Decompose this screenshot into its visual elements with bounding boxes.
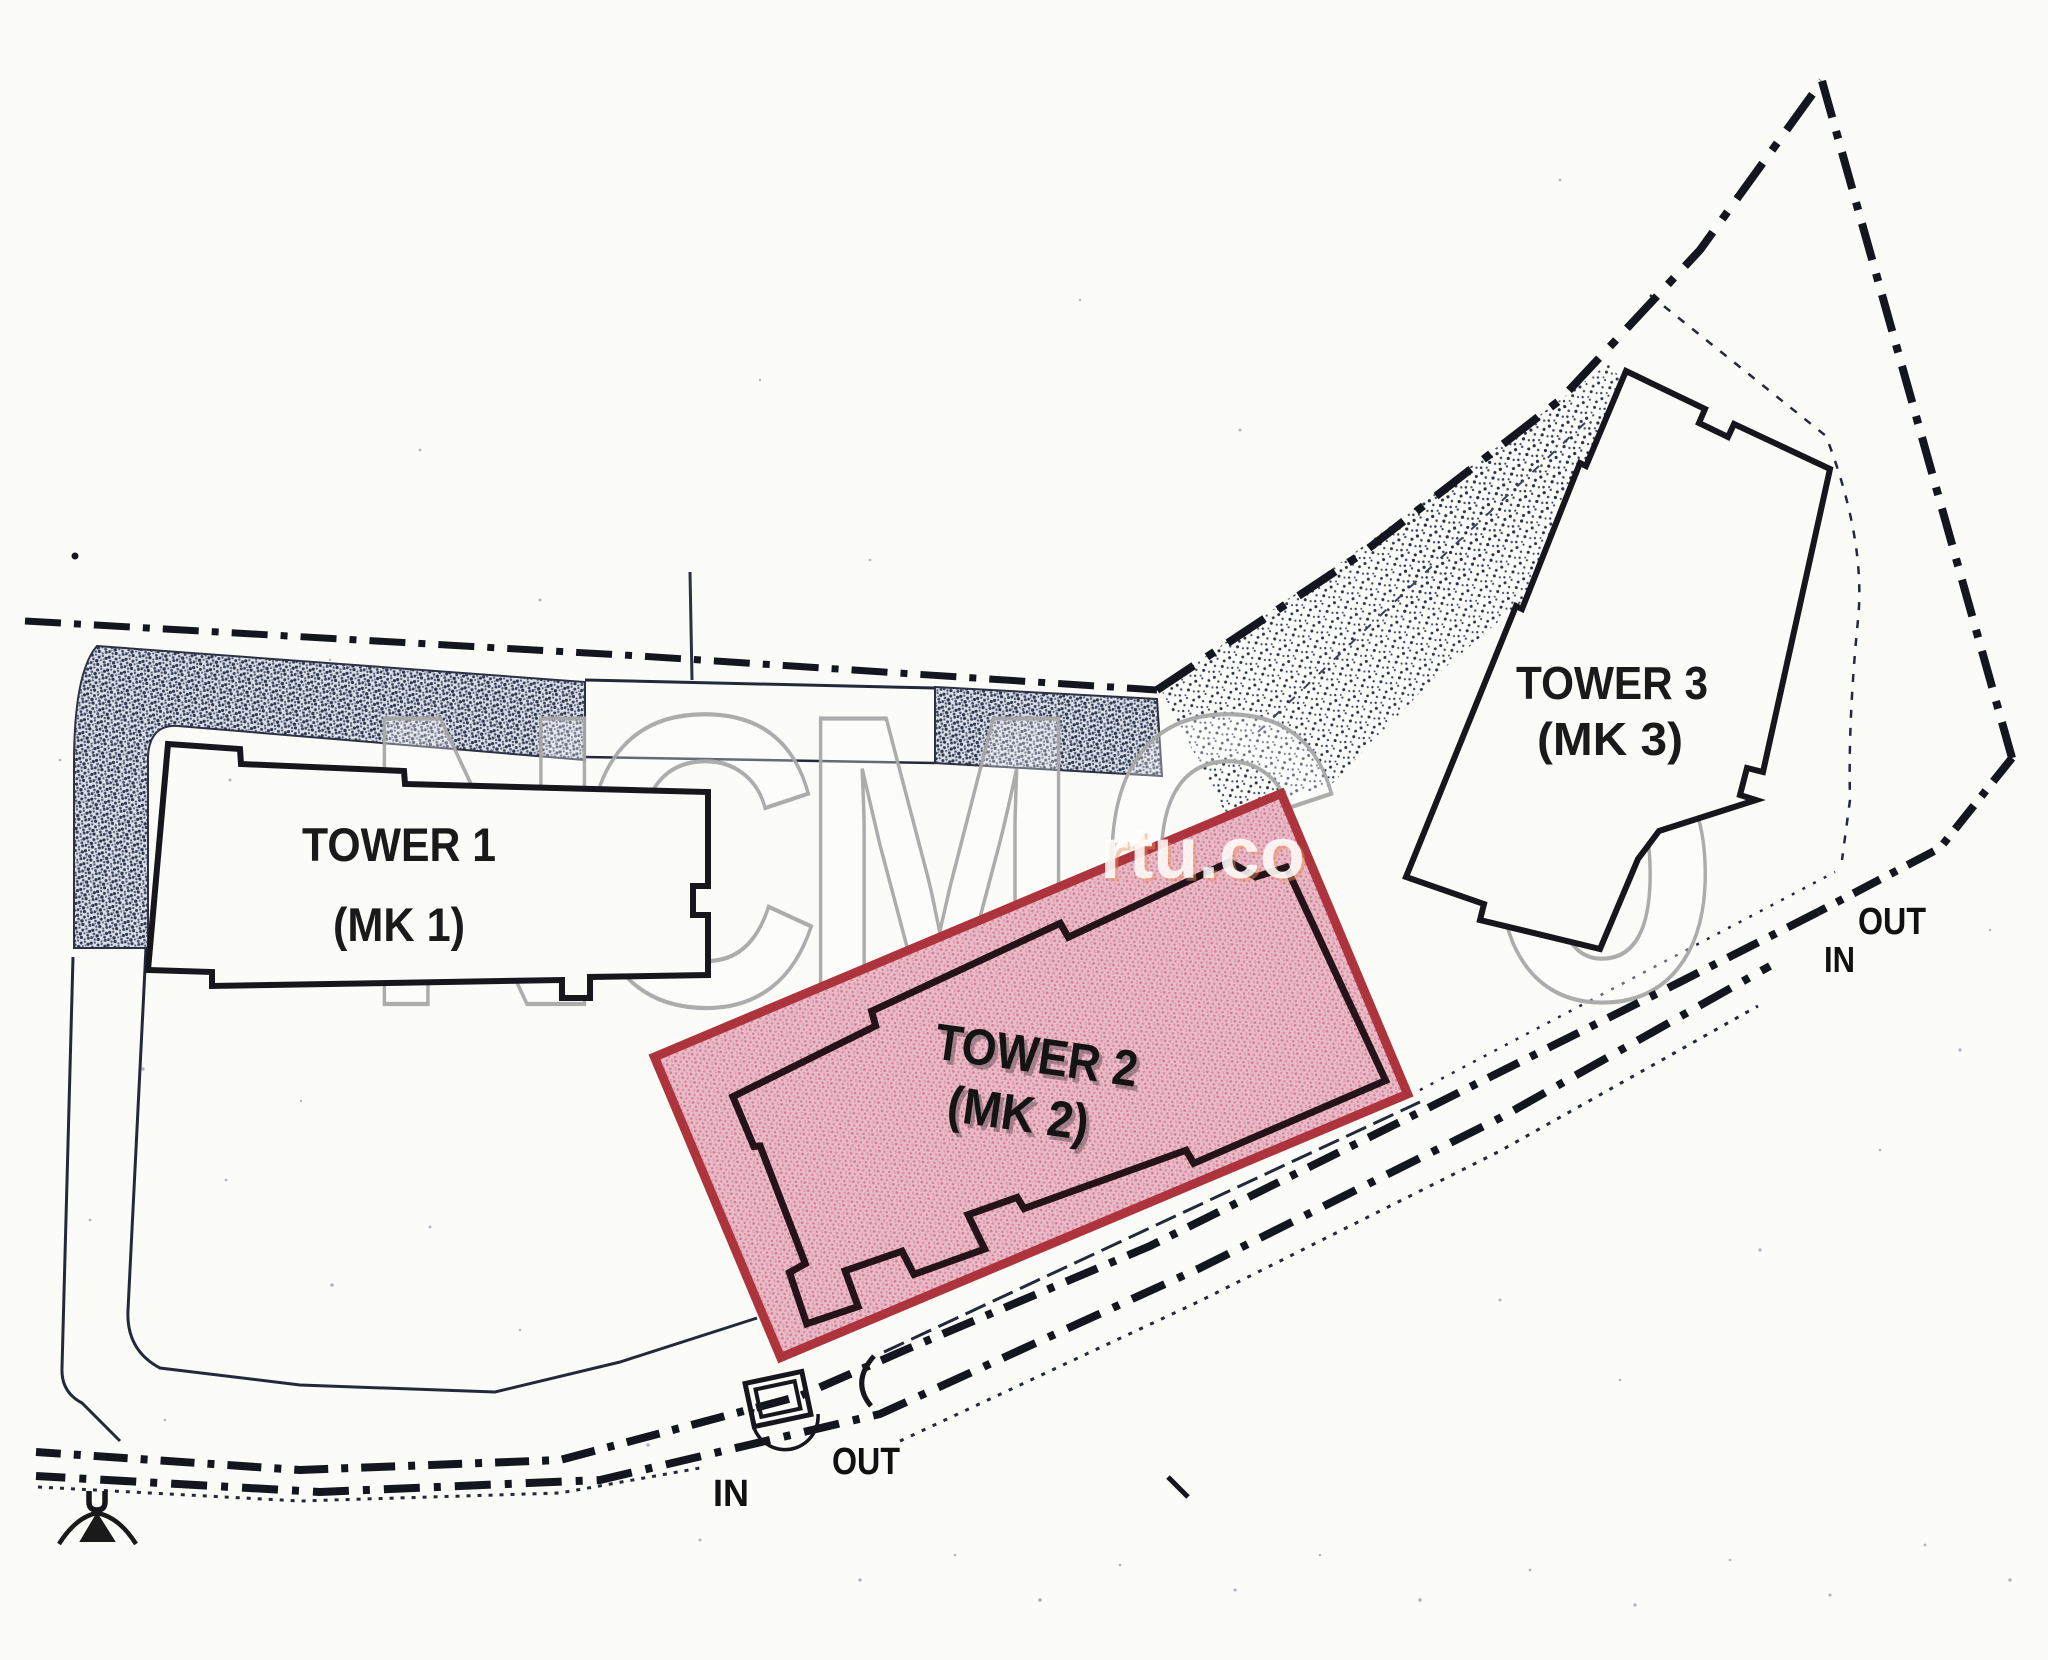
svg-text:TOWER 1: TOWER 1 (302, 818, 496, 871)
svg-text:IN: IN (713, 1473, 749, 1515)
svg-text:rtu.co: rtu.co (1100, 814, 1305, 894)
svg-text:TOWER 3: TOWER 3 (1516, 657, 1708, 709)
svg-text:IN: IN (1824, 939, 1855, 980)
svg-text:OUT: OUT (1858, 901, 1926, 943)
svg-text:(MK 3): (MK 3) (1537, 713, 1683, 765)
svg-text:OUT: OUT (832, 1441, 900, 1483)
svg-text:(MK 1): (MK 1) (333, 898, 465, 951)
